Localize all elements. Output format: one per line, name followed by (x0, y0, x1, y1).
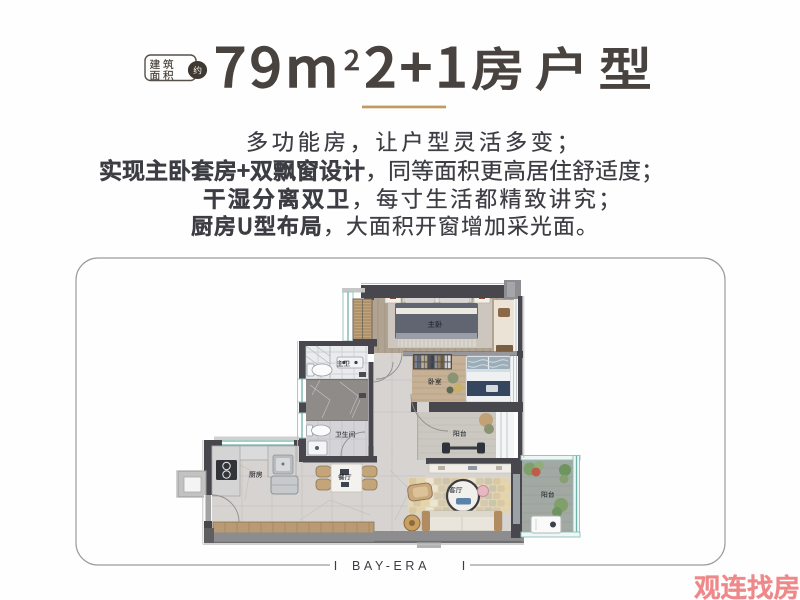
svg-text:BAY-ERA: BAY-ERA (352, 559, 430, 573)
